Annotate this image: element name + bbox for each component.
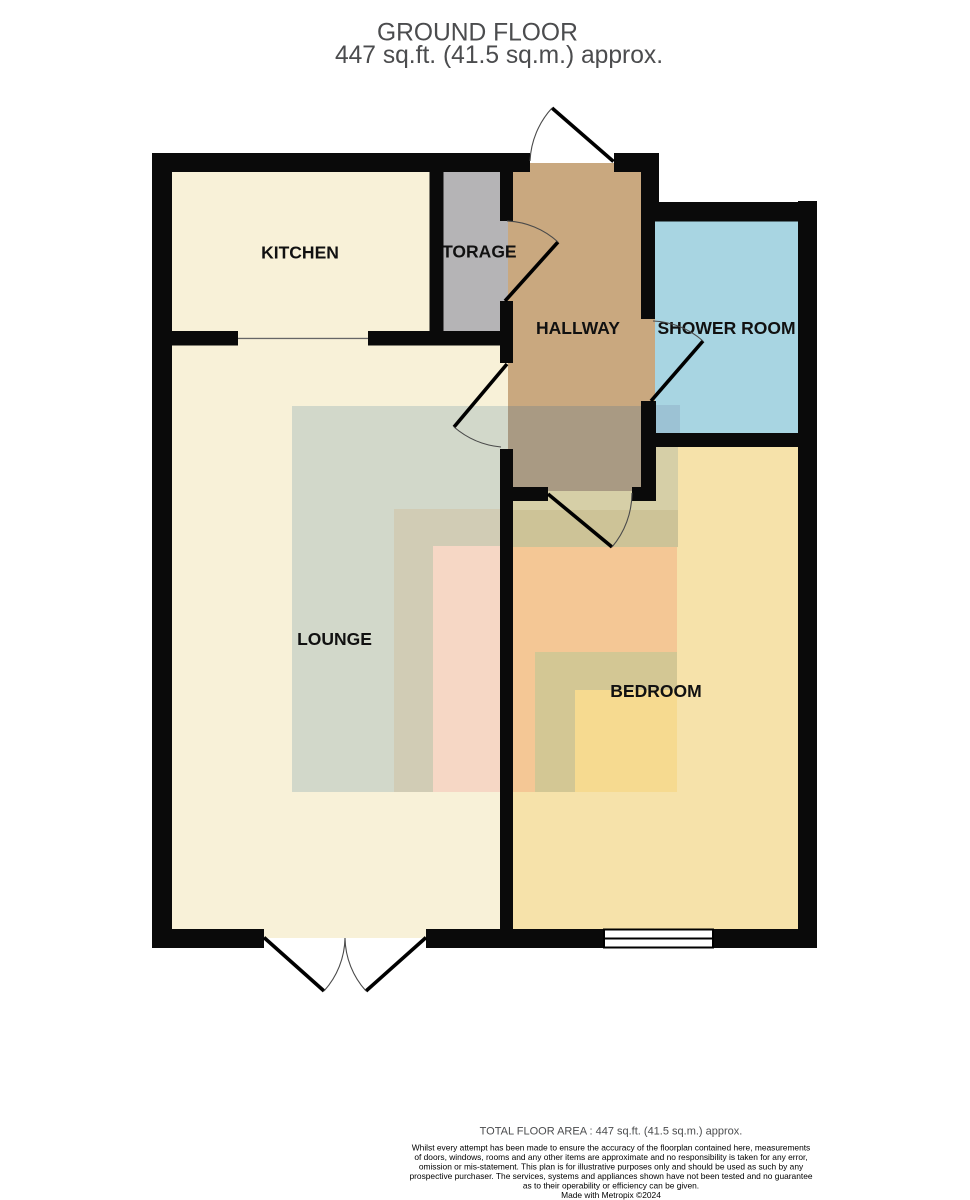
svg-text:447 sq.ft. (41.5 sq.m.) approx: 447 sq.ft. (41.5 sq.m.) approx. <box>335 42 663 69</box>
svg-text:SHOWER ROOM: SHOWER ROOM <box>657 318 795 338</box>
svg-text:of doors, windows, rooms and a: of doors, windows, rooms and any other i… <box>414 1152 807 1162</box>
svg-text:Whilst every attempt has been: Whilst every attempt has been made to en… <box>412 1142 811 1152</box>
svg-text:BEDROOM: BEDROOM <box>610 681 701 701</box>
svg-text:prospective purchaser. The ser: prospective purchaser. The services, sys… <box>409 1171 812 1181</box>
svg-text:as to their operability or eff: as to their operability or efficiency ca… <box>523 1180 699 1190</box>
svg-text:KITCHEN: KITCHEN <box>261 242 339 262</box>
svg-text:TOTAL FLOOR AREA : 447 sq.ft.: TOTAL FLOOR AREA : 447 sq.ft. (41.5 sq.m… <box>480 1126 743 1138</box>
svg-text:HALLWAY: HALLWAY <box>536 318 620 338</box>
svg-text:LOUNGE: LOUNGE <box>297 629 372 649</box>
svg-text:Made with Metropix ©2024: Made with Metropix ©2024 <box>561 1190 661 1200</box>
svg-text:omission or mis-statement. Thi: omission or mis-statement. This plan is … <box>419 1161 804 1171</box>
